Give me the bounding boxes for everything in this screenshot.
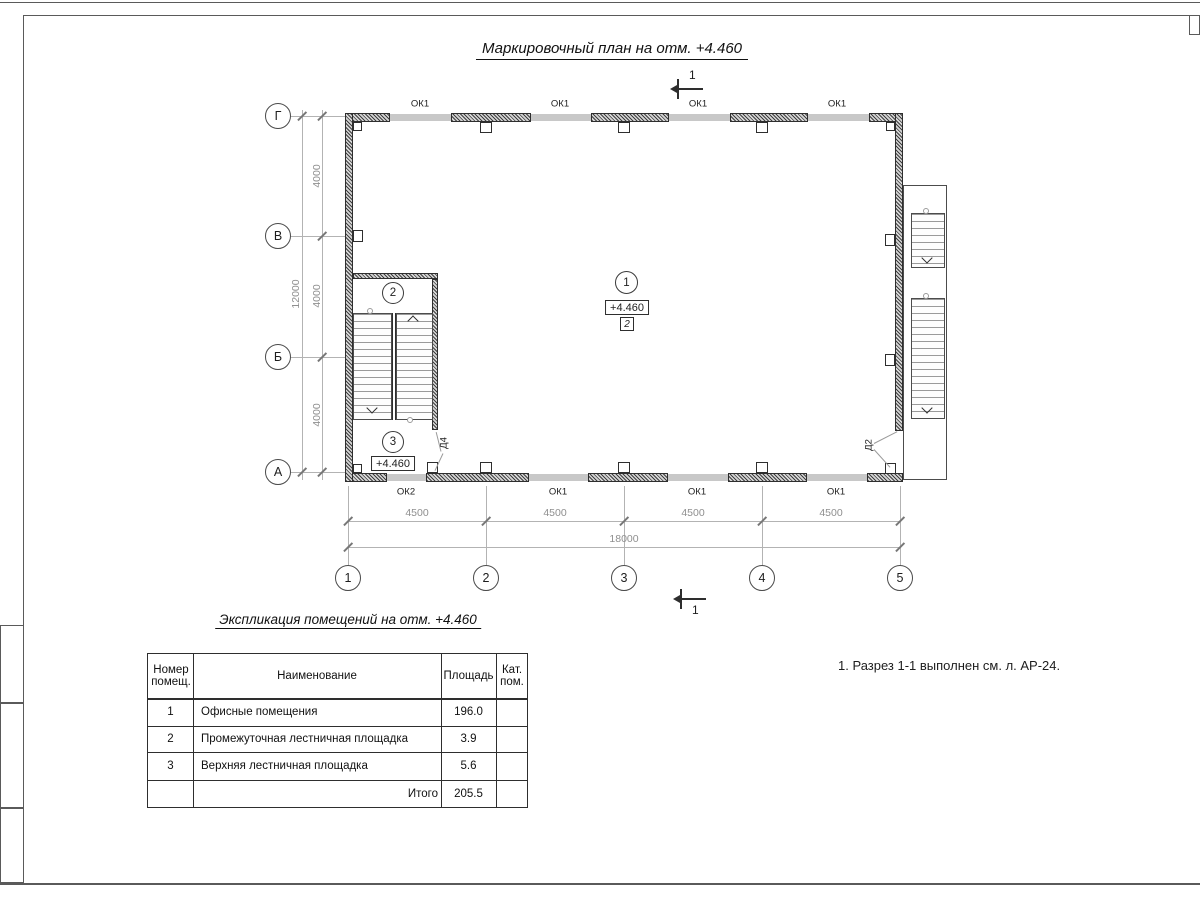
room-3-number: 3 bbox=[382, 431, 404, 453]
section-note: 1. Разрез 1-1 выполнен см. л. АР-24. bbox=[838, 658, 1060, 673]
frame-bottom-line bbox=[0, 883, 1200, 885]
total-label: Итого bbox=[201, 780, 438, 807]
section-number-top: 1 bbox=[689, 68, 696, 82]
pier-mark bbox=[618, 462, 630, 473]
stair-post-dot bbox=[407, 417, 413, 423]
section-mark-bottom bbox=[680, 598, 706, 600]
pier-mark bbox=[353, 464, 362, 473]
window-label-ok1: ОК1 bbox=[689, 99, 707, 110]
bottom-wall-segment bbox=[426, 473, 529, 482]
top-wall-segment bbox=[730, 113, 808, 122]
frame-stamp-box-1 bbox=[0, 625, 24, 703]
stairwell-partition-top bbox=[353, 273, 438, 279]
row-name: Офисные помещения bbox=[201, 698, 439, 726]
window-label-ok1: ОК1 bbox=[549, 487, 567, 498]
axis-extension-line bbox=[291, 236, 345, 237]
axis-col-3: 3 bbox=[611, 565, 637, 591]
top-wall-segment bbox=[591, 113, 669, 122]
pier-mark bbox=[885, 354, 895, 366]
dim-value-4500: 4500 bbox=[405, 507, 428, 519]
room-3-elevation: +4.460 bbox=[371, 456, 415, 471]
pier-mark bbox=[353, 122, 362, 131]
axis-extension-line bbox=[486, 486, 487, 565]
axis-col-4: 4 bbox=[749, 565, 775, 591]
window-label-ok1: ОК1 bbox=[688, 487, 706, 498]
window-label-ok1: ОК1 bbox=[551, 99, 569, 110]
room-2-number: 2 bbox=[382, 282, 404, 304]
frame-outer-top-line bbox=[0, 2, 1200, 3]
bottom-wall-segment bbox=[867, 473, 903, 482]
stair-post-dot bbox=[923, 208, 929, 214]
section-number-bottom: 1 bbox=[692, 603, 699, 617]
axis-extension-line bbox=[624, 486, 625, 565]
dim-value-4500: 4500 bbox=[681, 507, 704, 519]
header-name: Наименование bbox=[194, 654, 440, 698]
pier-mark bbox=[353, 230, 363, 242]
pier-mark bbox=[886, 122, 895, 131]
pier-mark bbox=[756, 462, 768, 473]
row-area: 5.6 bbox=[442, 752, 495, 780]
room-1-elevation: +4.460 bbox=[605, 300, 649, 315]
dim-value-4000: 4000 bbox=[311, 284, 323, 307]
room-1-floor-type: 2 bbox=[620, 317, 634, 331]
left-wall bbox=[345, 113, 353, 482]
exterior-stair-flight-2 bbox=[911, 298, 945, 419]
section-arrow-bottom bbox=[673, 595, 680, 603]
axis-extension-line bbox=[900, 486, 901, 565]
pier-mark bbox=[756, 122, 768, 133]
bottom-wall-segment bbox=[728, 473, 807, 482]
total-value: 205.5 bbox=[442, 780, 495, 807]
axis-row-g: Г bbox=[265, 103, 291, 129]
row-name: Промежуточная лестничная площадка bbox=[201, 726, 439, 752]
schedule-title: Экспликация помещений на отм. +4.460 bbox=[215, 612, 481, 629]
axis-extension-line bbox=[348, 486, 349, 565]
row-name: Верхняя лестничная площадка bbox=[201, 752, 439, 780]
stair-flight-right bbox=[396, 313, 433, 420]
dim-value-18000: 18000 bbox=[609, 533, 638, 545]
dim-value-4500: 4500 bbox=[543, 507, 566, 519]
stair-post-dot bbox=[367, 308, 373, 314]
axis-row-b: Б bbox=[265, 344, 291, 370]
room-1-number: 1 bbox=[615, 271, 638, 294]
dim-line-left-total bbox=[302, 110, 303, 480]
top-wall-segment bbox=[451, 113, 531, 122]
axis-col-1: 1 bbox=[335, 565, 361, 591]
dim-line-bottom-total bbox=[348, 547, 901, 548]
door-leader-d2 bbox=[874, 431, 898, 444]
window-label-ok1: ОК1 bbox=[411, 99, 429, 110]
axis-extension-line bbox=[291, 357, 345, 358]
section-arrow-top bbox=[670, 85, 677, 93]
header-category: Кат. пом. bbox=[497, 654, 527, 698]
right-wall bbox=[895, 113, 903, 431]
schedule-table: Номер помещ. Наименование Площадь Кат. п… bbox=[147, 653, 528, 808]
axis-extension-line bbox=[762, 486, 763, 565]
row-number: 2 bbox=[148, 726, 193, 752]
frame-inner-top-line bbox=[23, 15, 1200, 16]
drawing-sheet: Маркировочный план на отм. +4.460 bbox=[0, 0, 1200, 900]
row-number: 3 bbox=[148, 752, 193, 780]
window-label-ok1: ОК1 bbox=[828, 99, 846, 110]
row-area: 3.9 bbox=[442, 726, 495, 752]
plan-title: Маркировочный план на отм. +4.460 bbox=[476, 40, 748, 60]
dim-value-4500: 4500 bbox=[819, 507, 842, 519]
section-mark-top bbox=[677, 88, 703, 90]
axis-col-2: 2 bbox=[473, 565, 499, 591]
pier-mark bbox=[885, 234, 895, 246]
row-number: 1 bbox=[148, 698, 193, 726]
axis-row-v: В bbox=[265, 223, 291, 249]
pier-mark bbox=[480, 122, 492, 133]
header-room-number: Номер помещ. bbox=[150, 654, 192, 698]
dim-value-4000: 4000 bbox=[311, 164, 323, 187]
window-label-ok2: ОК2 bbox=[397, 487, 415, 498]
pier-mark bbox=[618, 122, 630, 133]
frame-stamp-box-2 bbox=[0, 703, 24, 808]
dim-value-12000: 12000 bbox=[290, 279, 302, 308]
pier-mark bbox=[480, 462, 492, 473]
axis-row-a: А bbox=[265, 459, 291, 485]
window-label-ok1: ОК1 bbox=[827, 487, 845, 498]
door-leader-d2 bbox=[874, 449, 891, 468]
axis-col-5: 5 bbox=[887, 565, 913, 591]
dim-value-4000: 4000 bbox=[311, 403, 323, 426]
header-area: Площадь bbox=[442, 654, 495, 698]
row-area: 196.0 bbox=[442, 698, 495, 726]
stair-post-dot bbox=[923, 293, 929, 299]
frame-corner-box bbox=[1189, 15, 1200, 35]
bottom-wall-segment bbox=[588, 473, 668, 482]
frame-stamp-box-3 bbox=[0, 808, 24, 883]
